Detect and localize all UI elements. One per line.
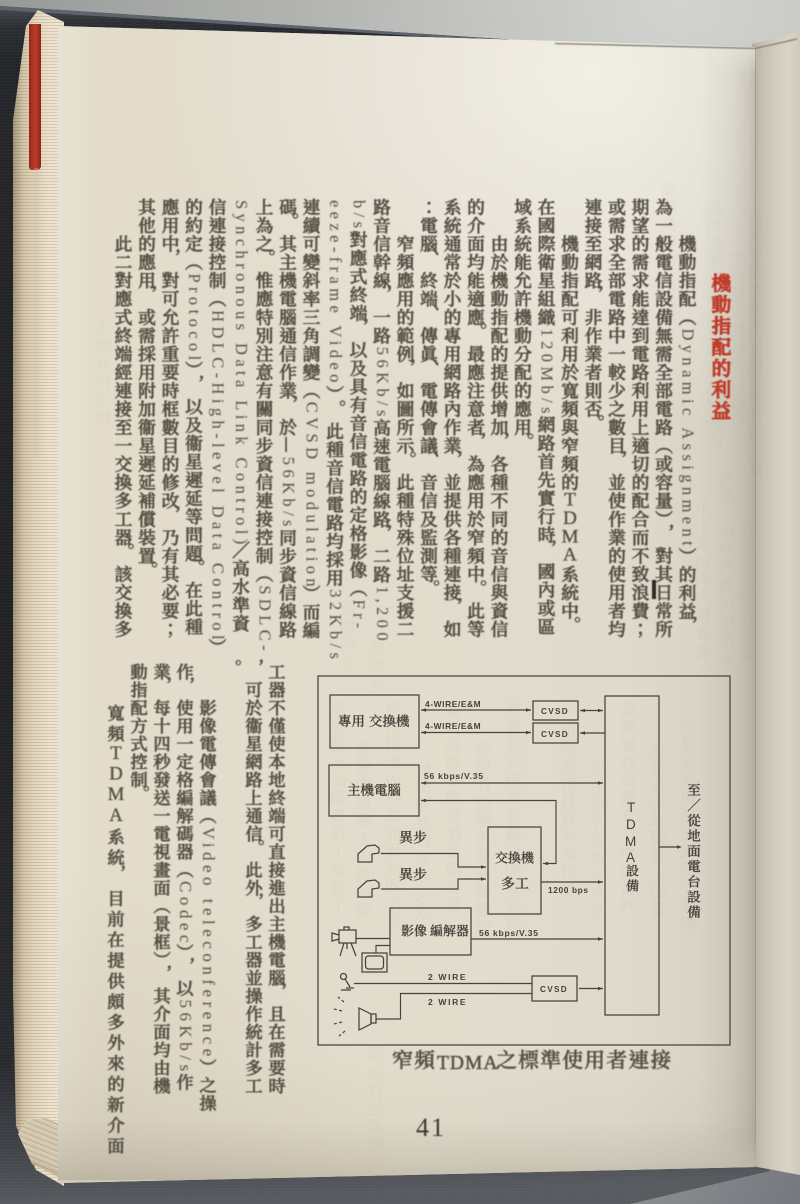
- svg-text:1200 bps: 1200 bps: [548, 885, 589, 895]
- svg-text:M: M: [561, 526, 578, 547]
- svg-text:Protocol: Protocol: [185, 273, 204, 364]
- svg-text:A: A: [626, 850, 635, 865]
- svg-text:32Kb/s: 32Kb/s: [326, 589, 345, 663]
- svg-text:CVSD: CVSD: [540, 985, 568, 994]
- svg-text:2 WIRE: 2 WIRE: [428, 997, 467, 1007]
- svg-text:HDLC-High-level Data Control: HDLC-High-level Data Control: [209, 310, 228, 644]
- svg-text:b/s: b/s: [350, 200, 369, 232]
- svg-text:Codec: Codec: [176, 881, 195, 947]
- svg-text:56Kb/s: 56Kb/s: [279, 457, 298, 531]
- svg-text:Video teleconference: Video teleconference: [199, 827, 218, 1061]
- svg-text:4-WIRE/E&M: 4-WIRE/E&M: [425, 699, 481, 709]
- svg-text:D: D: [563, 508, 577, 529]
- svg-text:A: A: [109, 805, 123, 826]
- svg-text:CVSD: CVSD: [541, 730, 569, 739]
- svg-text:56Kb/s: 56Kb/s: [176, 999, 195, 1075]
- svg-text:CVSD: CVSD: [541, 707, 569, 716]
- svg-text:eeze-frame Video: eeze-frame Video: [326, 200, 345, 387]
- svg-text:1,200: 1,200: [373, 586, 392, 645]
- svg-text:D: D: [626, 817, 636, 832]
- svg-text:120Mb/s: 120Mb/s: [538, 328, 557, 417]
- svg-text:A: A: [563, 545, 577, 566]
- svg-text:T: T: [110, 743, 122, 764]
- svg-text:D: D: [109, 763, 122, 784]
- svg-text:41: 41: [416, 1113, 446, 1142]
- svg-text:T: T: [564, 489, 576, 510]
- svg-text:Dynamic Assignment: Dynamic Assignment: [679, 328, 698, 550]
- svg-text:CVSD modulation: CVSD modulation: [303, 402, 322, 591]
- svg-text:M: M: [108, 784, 125, 805]
- svg-text:SDLC-: SDLC-: [256, 585, 275, 655]
- svg-text:56Kb/s: 56Kb/s: [373, 347, 392, 421]
- svg-text:56 kbps/V.35: 56 kbps/V.35: [479, 928, 539, 938]
- svg-text:T: T: [627, 800, 635, 815]
- svg-text:Fr-: Fr-: [350, 600, 369, 633]
- svg-text:4-WIRE/E&M: 4-WIRE/E&M: [425, 721, 481, 731]
- svg-text:56 kbps/V.35: 56 kbps/V.35: [424, 771, 484, 781]
- svg-text:2 WIRE: 2 WIRE: [428, 972, 467, 982]
- svg-text:Synchronous Data Link Control): Synchronous Data Link Control): [232, 200, 251, 549]
- svg-text:M: M: [625, 834, 636, 849]
- svg-text:TDMA: TDMA: [437, 1053, 498, 1074]
